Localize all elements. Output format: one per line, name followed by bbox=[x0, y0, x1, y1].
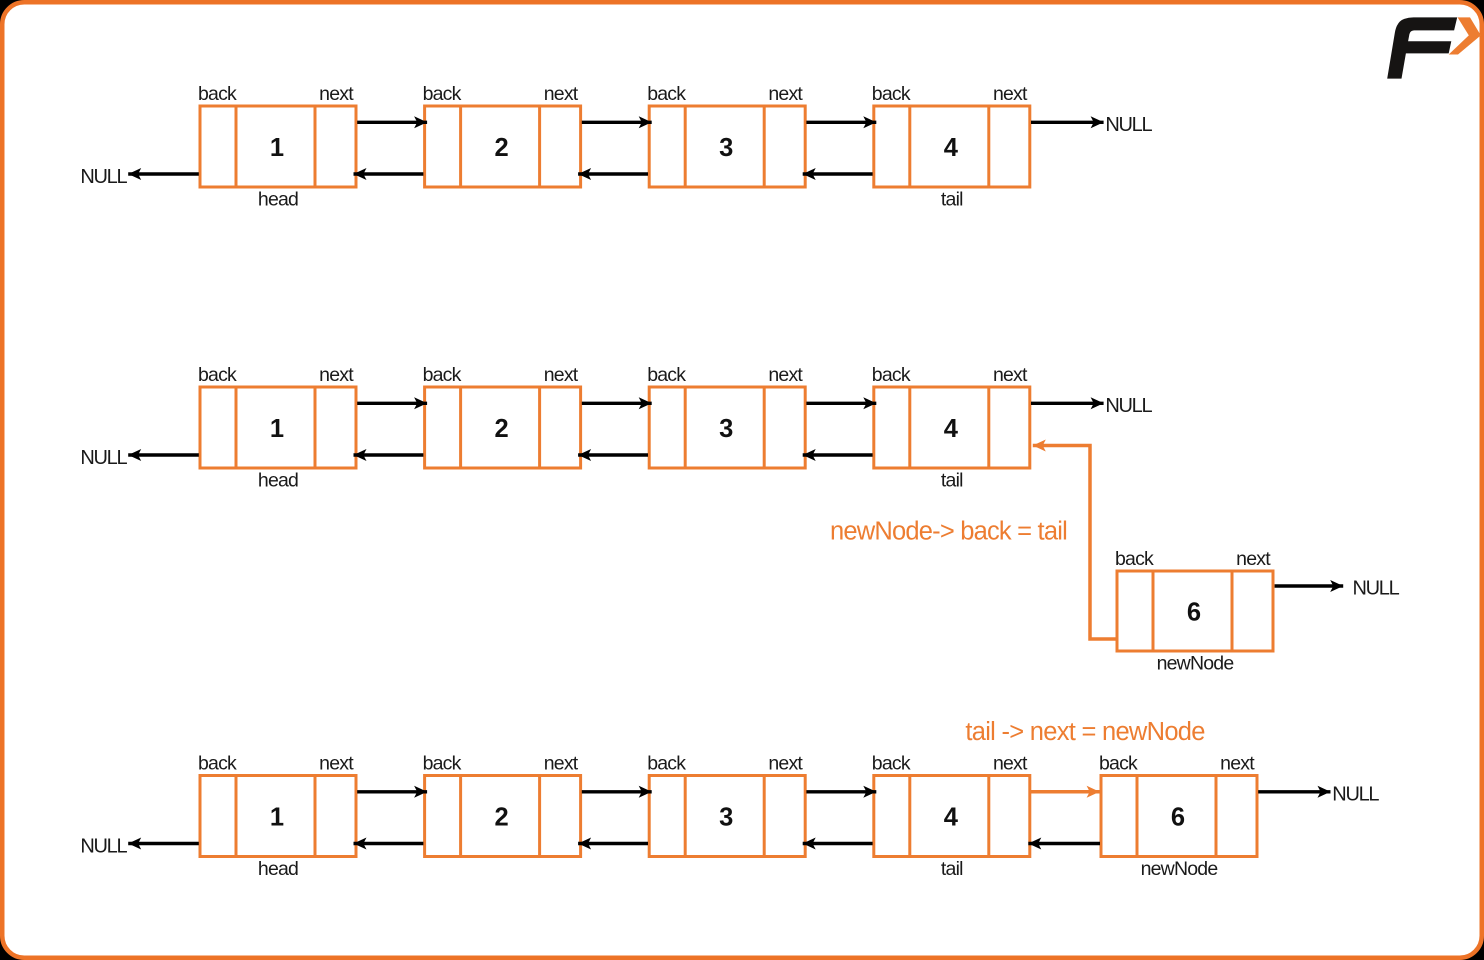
svg-text:3: 3 bbox=[719, 134, 733, 162]
svg-text:head: head bbox=[258, 469, 298, 491]
svg-text:next: next bbox=[319, 364, 354, 386]
svg-text:tail: tail bbox=[941, 188, 963, 210]
svg-text:3: 3 bbox=[719, 415, 733, 443]
svg-text:3: 3 bbox=[719, 804, 733, 832]
svg-text:back: back bbox=[872, 364, 911, 386]
svg-text:next: next bbox=[768, 364, 803, 386]
svg-text:6: 6 bbox=[1187, 599, 1201, 627]
svg-text:next: next bbox=[544, 753, 579, 775]
svg-text:next: next bbox=[768, 753, 803, 775]
svg-text:back: back bbox=[872, 83, 911, 105]
svg-text:back: back bbox=[423, 83, 462, 105]
svg-text:next: next bbox=[544, 364, 579, 386]
svg-text:back: back bbox=[198, 83, 237, 105]
svg-text:tail: tail bbox=[941, 858, 963, 880]
svg-text:NULL: NULL bbox=[80, 166, 127, 188]
svg-text:4: 4 bbox=[944, 804, 959, 832]
svg-text:2: 2 bbox=[495, 415, 509, 443]
svg-text:next: next bbox=[319, 83, 354, 105]
svg-text:next: next bbox=[993, 83, 1028, 105]
svg-text:2: 2 bbox=[495, 804, 509, 832]
svg-text:NULL: NULL bbox=[80, 835, 127, 857]
svg-text:1: 1 bbox=[270, 804, 284, 832]
svg-text:next: next bbox=[993, 753, 1028, 775]
svg-text:next: next bbox=[1236, 548, 1271, 570]
svg-text:next: next bbox=[768, 83, 803, 105]
svg-text:back: back bbox=[423, 753, 462, 775]
svg-text:4: 4 bbox=[944, 134, 959, 162]
svg-text:1: 1 bbox=[270, 415, 284, 443]
svg-text:head: head bbox=[258, 188, 298, 210]
svg-text:2: 2 bbox=[495, 134, 509, 162]
svg-text:head: head bbox=[258, 858, 298, 880]
svg-text:next: next bbox=[993, 364, 1028, 386]
svg-text:next: next bbox=[319, 753, 354, 775]
svg-text:back: back bbox=[1115, 548, 1154, 570]
svg-text:back: back bbox=[647, 364, 686, 386]
svg-text:next: next bbox=[544, 83, 579, 105]
svg-text:back: back bbox=[647, 83, 686, 105]
svg-text:1: 1 bbox=[270, 134, 284, 162]
svg-text:back: back bbox=[198, 364, 237, 386]
svg-text:NULL: NULL bbox=[1353, 578, 1400, 600]
svg-text:NULL: NULL bbox=[80, 447, 127, 469]
svg-text:back: back bbox=[872, 753, 911, 775]
svg-text:back: back bbox=[647, 753, 686, 775]
svg-text:NULL: NULL bbox=[1105, 114, 1152, 136]
svg-text:back: back bbox=[423, 364, 462, 386]
svg-text:NULL: NULL bbox=[1332, 784, 1379, 806]
svg-text:back: back bbox=[1099, 753, 1138, 775]
svg-text:tail -> next = newNode: tail -> next = newNode bbox=[965, 718, 1205, 746]
svg-text:6: 6 bbox=[1171, 804, 1185, 832]
svg-text:newNode-> back = tail: newNode-> back = tail bbox=[830, 518, 1067, 546]
svg-text:back: back bbox=[198, 753, 237, 775]
svg-text:NULL: NULL bbox=[1105, 395, 1152, 417]
svg-text:4: 4 bbox=[944, 415, 959, 443]
svg-text:next: next bbox=[1220, 753, 1255, 775]
svg-text:tail: tail bbox=[941, 469, 963, 491]
svg-text:newNode: newNode bbox=[1157, 652, 1234, 674]
svg-text:newNode: newNode bbox=[1141, 858, 1218, 880]
